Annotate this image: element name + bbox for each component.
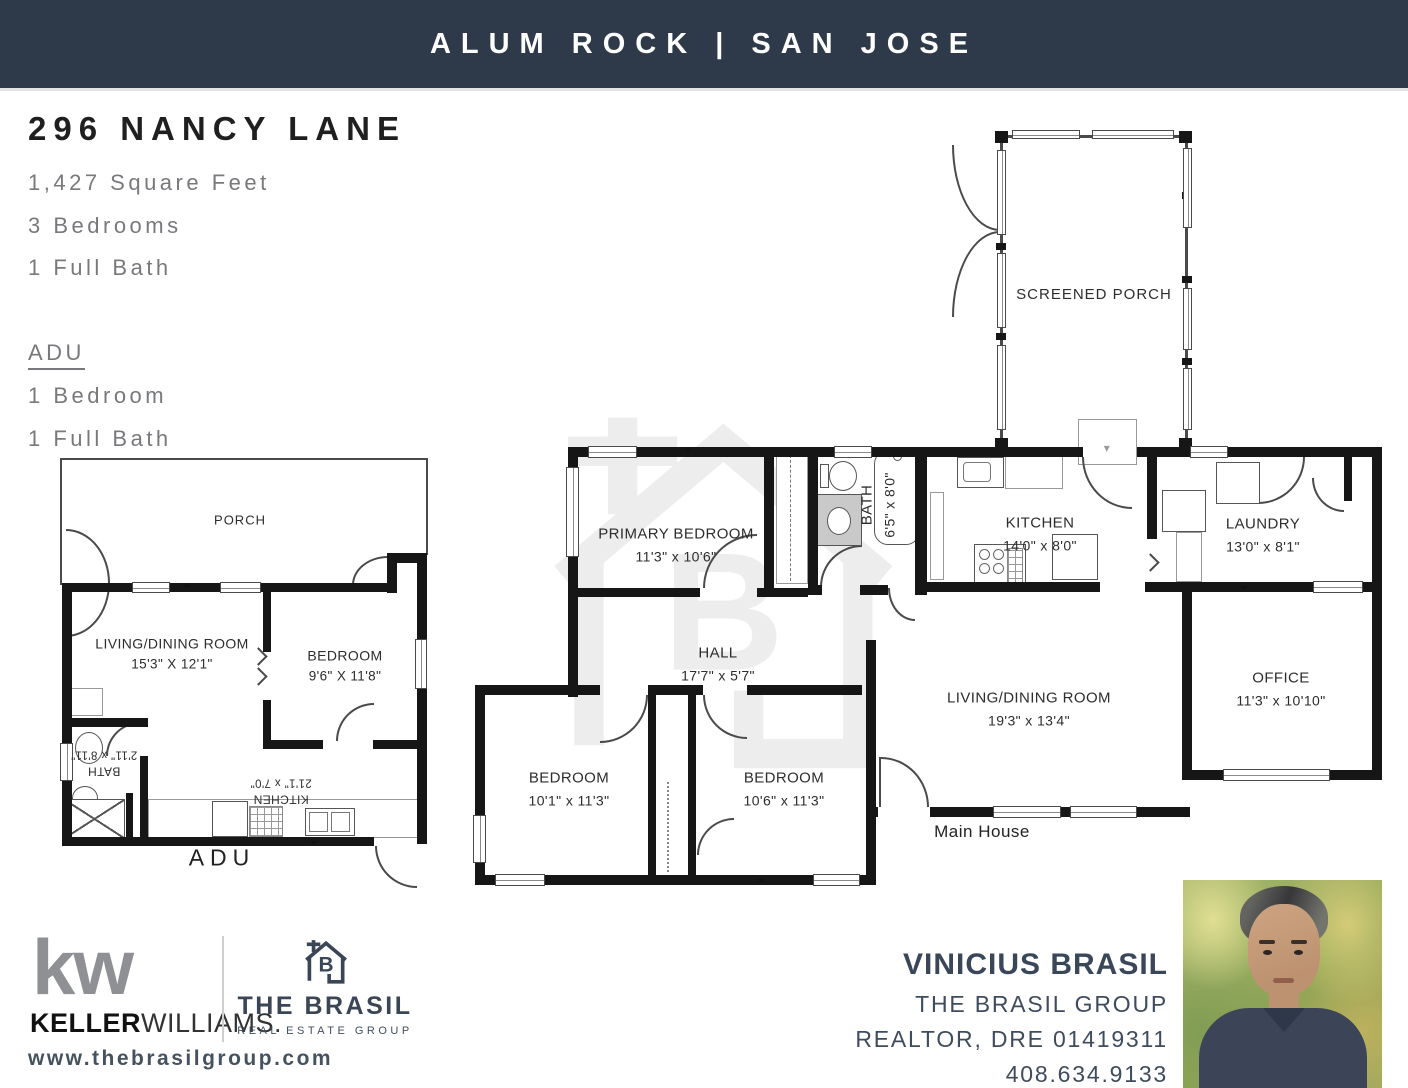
footer-divider: [222, 936, 224, 1042]
label-kitchen: KITCHEN14'0" x 8'0": [1003, 512, 1077, 556]
label-adu-living: LIVING/DINING ROOM15'3" X 12'1": [95, 633, 248, 674]
property-bath: 1 Full Bath: [28, 255, 172, 281]
label-bath: BATH6'5" x 8'0": [856, 472, 900, 538]
burner: [979, 549, 990, 560]
door-arc: [1258, 457, 1305, 504]
label-adu-bedroom: BEDROOM9'6" X 11'8": [307, 645, 382, 686]
label-bedroom-left: BEDROOM10'1" x 11'3": [529, 767, 610, 811]
door-arc: [336, 703, 374, 741]
burner: [979, 563, 990, 574]
agent-name: VINICIUS BRASIL: [700, 948, 1168, 982]
kitchen-sink-basin: [963, 462, 991, 482]
door-arc: [1082, 457, 1132, 509]
dryer: [1162, 490, 1206, 532]
porch-door-arc: [952, 231, 1000, 317]
label-primary-bedroom: PRIMARY BEDROOM11'3" x 10'6": [598, 523, 753, 567]
agent-info-block: VINICIUS BRASIL THE BRASIL GROUP REALTOR…: [700, 948, 1168, 1088]
porch-door-arc: [952, 145, 1000, 231]
label-adu-bath: BATH2'11" x 8'11": [71, 745, 138, 780]
closet-door-arc: [697, 818, 734, 855]
brasil-subtitle: REAL ESTATE GROUP: [236, 1025, 414, 1037]
main-house-caption: Main House: [934, 822, 1030, 842]
counter: [930, 492, 944, 580]
label-bedroom-right: BEDROOM10'6" x 11'3": [744, 767, 825, 811]
toilet: [820, 464, 829, 488]
shower: [64, 799, 125, 839]
neighborhood-title: ALUM ROCK | SAN JOSE: [430, 28, 978, 61]
agent-phone[interactable]: 408.634.9133: [700, 1061, 1168, 1088]
label-adu-porch: PORCH: [214, 510, 266, 530]
adu-bath: 1 Full Bath: [28, 426, 172, 452]
property-beds: 3 Bedrooms: [28, 213, 182, 239]
kw-logo: kw: [32, 928, 132, 1006]
agent-license: REALTOR, DRE 01419311: [700, 1026, 1168, 1053]
counter: [1005, 455, 1063, 489]
header-banner: ALUM ROCK | SAN JOSE: [0, 0, 1408, 91]
property-sqft: 1,427 Square Feet: [28, 170, 270, 196]
website-link[interactable]: www.thebrasilgroup.com: [28, 1047, 333, 1071]
door-arc: [1312, 478, 1344, 512]
island: [212, 801, 248, 837]
label-office: OFFICE11'3" x 10'10": [1236, 667, 1325, 711]
property-address: 296 NANCY LANE: [28, 110, 406, 148]
toilet: [829, 461, 857, 491]
brasil-group-logo-block: B THE BRASIL REAL ESTATE GROUP: [236, 934, 414, 1037]
door-arc: [375, 846, 417, 888]
sink-basin: [827, 507, 851, 535]
agent-team: THE BRASIL GROUP: [700, 991, 1168, 1018]
label-screened-porch: SCREENED PORCH: [1016, 284, 1172, 307]
adu-heading: ADU: [28, 340, 85, 366]
laundry-counter: [1176, 532, 1202, 582]
door-arc: [66, 529, 110, 583]
burner: [993, 563, 1004, 574]
stove: [249, 806, 283, 837]
agent-photo: [1183, 880, 1382, 1088]
flyer-page: ALUM ROCK | SAN JOSE 296 NANCY LANE 1,42…: [0, 0, 1408, 1088]
sink-basin: [331, 812, 350, 832]
closet: [776, 452, 808, 584]
label-laundry: LAUNDRY13'0" x 8'1": [1226, 513, 1300, 557]
sink-basin: [309, 812, 328, 832]
cabinet: [67, 688, 103, 716]
adu-caption: ADU: [189, 845, 256, 872]
label-hall: HALL17'7" x 5'7": [681, 642, 755, 686]
door-arc: [352, 556, 388, 585]
label-living-dining: LIVING/DINING ROOM19'3" x 13'4": [947, 687, 1111, 731]
label-adu-kitchen: KITCHEN21'1" x 7'0": [250, 773, 311, 808]
washer: [1216, 462, 1260, 504]
adu-beds: 1 Bedroom: [28, 383, 167, 409]
svg-text:B: B: [319, 953, 334, 976]
brasil-wordmark: THE BRASIL: [236, 992, 414, 1021]
brasil-house-icon: B: [299, 934, 351, 990]
